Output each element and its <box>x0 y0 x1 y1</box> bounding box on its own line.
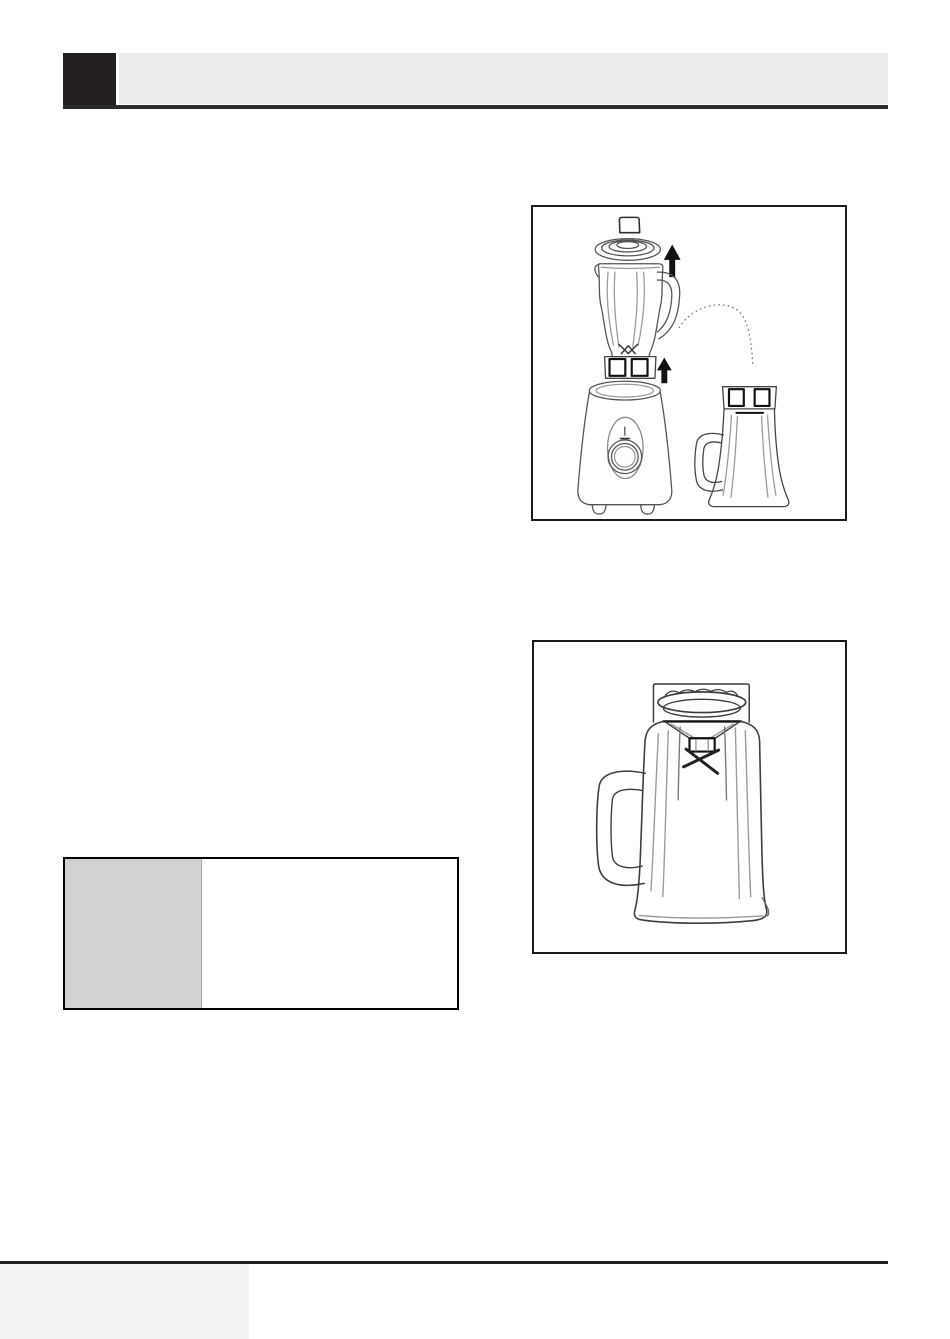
note-table-label-cell <box>65 859 202 1008</box>
blender-jug-icon <box>595 264 663 357</box>
chapter-number-block <box>63 53 116 105</box>
chopper-jar-icon <box>695 387 789 507</box>
chopper-jar-drawing <box>534 642 845 952</box>
chapter-title-bar <box>119 53 888 104</box>
blade-unit-icon <box>665 722 739 773</box>
note-table <box>63 857 459 1010</box>
blender-disassembly-figure <box>531 205 847 521</box>
manual-page <box>0 0 950 1339</box>
storage-lid-icon <box>653 684 749 722</box>
blender-lid-icon <box>595 239 660 261</box>
chopper-jar-figure <box>532 640 847 954</box>
note-table-content-cell <box>202 859 457 1008</box>
jar-handle-icon <box>597 771 645 885</box>
up-arrow-icon <box>657 358 672 384</box>
footer-brand-block <box>0 1264 249 1339</box>
blender-disassembly-drawing <box>533 207 845 519</box>
dotted-transfer-arrow-icon <box>679 305 753 367</box>
control-knob-icon <box>608 427 642 473</box>
measuring-cup-icon <box>619 217 639 232</box>
blade-collar-icon <box>605 357 656 379</box>
header-underline <box>63 105 888 109</box>
motor-base-icon <box>578 381 672 514</box>
